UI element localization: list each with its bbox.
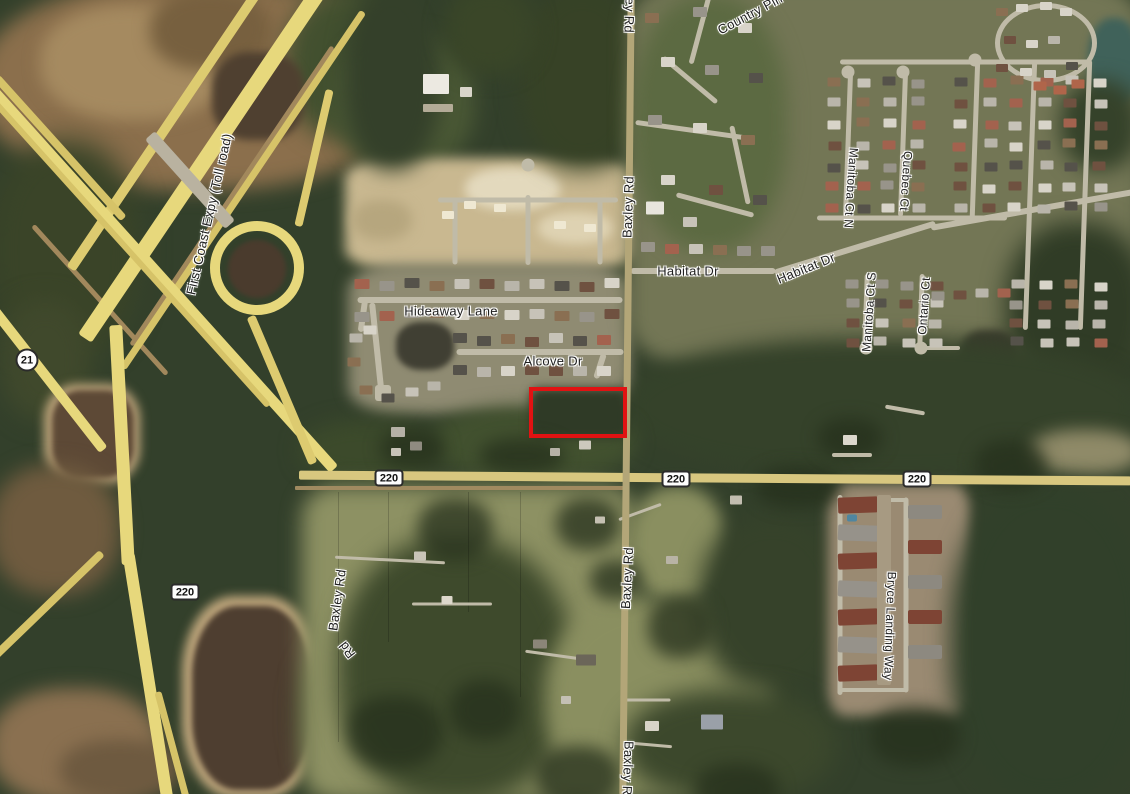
route-shields-layer: 21220220220220	[0, 0, 1130, 794]
route-shield-sr-220-southwest: 220	[171, 584, 200, 601]
route-shield-sr-21: 21	[16, 349, 39, 372]
route-shield-sr-220-east: 220	[903, 471, 932, 488]
route-shield-sr-220-mid: 220	[662, 471, 691, 488]
satellite-map[interactable]: First Coast Expy (Toll road)Country PinB…	[0, 0, 1130, 794]
route-shield-sr-220-west: 220	[375, 470, 404, 487]
